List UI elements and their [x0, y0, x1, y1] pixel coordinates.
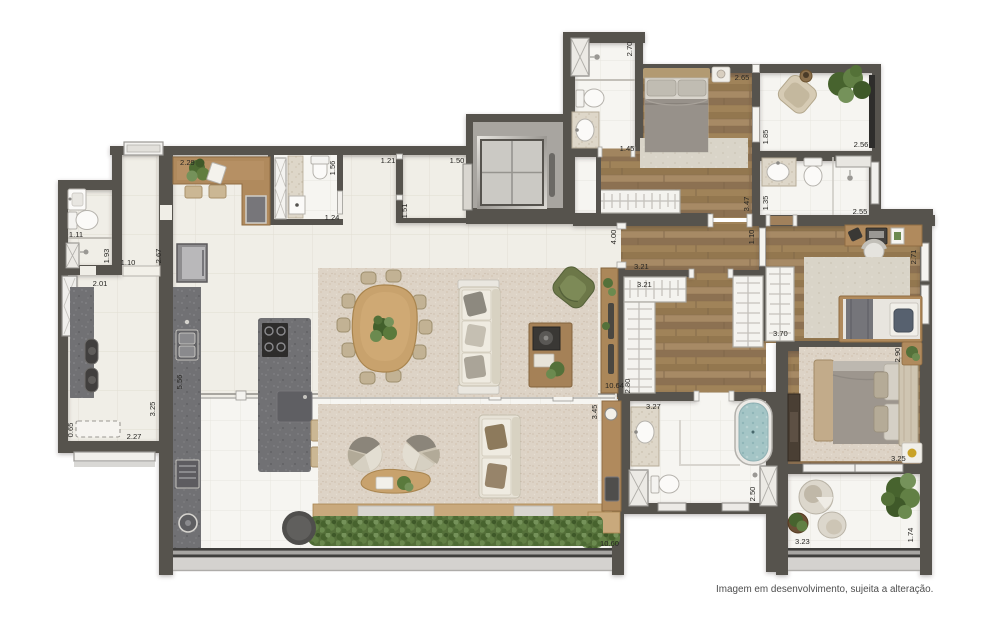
svg-text:1.56: 1.56	[328, 161, 337, 176]
svg-text:2.71: 2.71	[909, 250, 918, 265]
svg-text:10.60: 10.60	[600, 539, 619, 548]
svg-text:1.74: 1.74	[906, 528, 915, 543]
svg-text:3.23: 3.23	[795, 537, 810, 546]
svg-text:3.47: 3.47	[742, 197, 751, 212]
svg-text:3.25: 3.25	[891, 454, 906, 463]
svg-text:1.11: 1.11	[69, 230, 83, 239]
svg-text:0.65: 0.65	[66, 423, 75, 438]
svg-text:2.55: 2.55	[853, 207, 868, 216]
svg-text:10.64: 10.64	[605, 381, 624, 390]
svg-text:2.29: 2.29	[180, 158, 195, 167]
svg-text:3.27: 3.27	[646, 402, 661, 411]
svg-text:1.35: 1.35	[761, 196, 770, 211]
svg-text:1.50: 1.50	[450, 156, 465, 165]
svg-text:2.27: 2.27	[127, 432, 142, 441]
svg-text:4.00: 4.00	[609, 230, 618, 245]
svg-text:3.70: 3.70	[773, 329, 788, 338]
svg-text:1.10: 1.10	[747, 230, 756, 245]
svg-text:2.80: 2.80	[623, 379, 632, 394]
svg-text:2.01: 2.01	[93, 279, 108, 288]
svg-text:3.25: 3.25	[148, 402, 157, 417]
svg-text:1.51: 1.51	[400, 204, 409, 219]
svg-text:3.45: 3.45	[590, 405, 599, 420]
svg-text:1.10: 1.10	[121, 258, 136, 267]
svg-text:2.67: 2.67	[154, 249, 163, 264]
svg-text:2.70: 2.70	[625, 42, 634, 57]
svg-text:1.93: 1.93	[102, 249, 111, 264]
svg-text:Imagem em desenvolvimento, suj: Imagem em desenvolvimento, sujeita a alt…	[716, 584, 933, 595]
svg-text:3.21: 3.21	[634, 262, 649, 271]
svg-text:2.90: 2.90	[893, 348, 902, 363]
svg-text:5.56: 5.56	[175, 375, 184, 390]
svg-text:1.85: 1.85	[761, 130, 770, 145]
svg-text:2.65: 2.65	[735, 73, 750, 82]
svg-text:1.21: 1.21	[381, 156, 396, 165]
svg-text:1.24: 1.24	[325, 213, 340, 222]
svg-text:3.21: 3.21	[637, 280, 652, 289]
svg-text:2.50: 2.50	[748, 487, 757, 502]
svg-text:2.56: 2.56	[854, 140, 869, 149]
svg-text:1.45: 1.45	[620, 144, 635, 153]
